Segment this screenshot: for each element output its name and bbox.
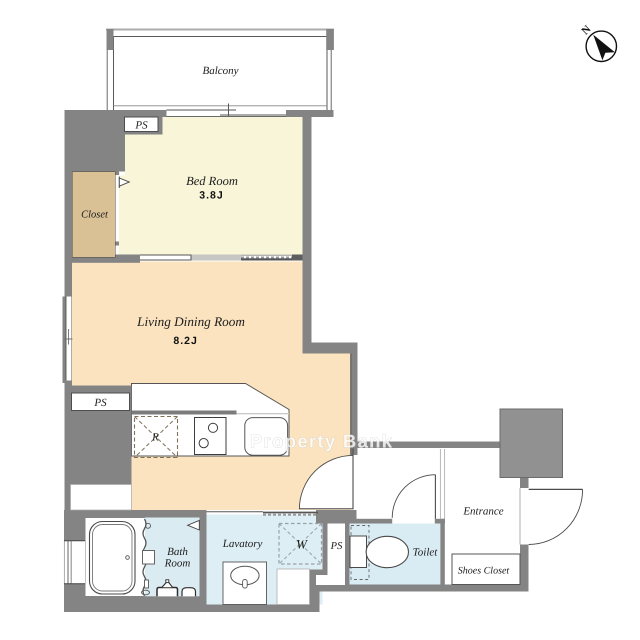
svg-text:PS: PS (134, 120, 148, 132)
svg-text:R: R (151, 432, 159, 444)
svg-text:Room: Room (164, 558, 191, 570)
svg-text:Toilet: Toilet (413, 547, 439, 559)
svg-text:Bed Room: Bed Room (186, 174, 238, 188)
svg-text:Living Dining Room: Living Dining Room (136, 314, 245, 329)
svg-text:W: W (296, 537, 308, 552)
svg-text:PS: PS (330, 541, 343, 552)
svg-text:Bath: Bath (167, 546, 188, 558)
svg-text:Lavatory: Lavatory (222, 538, 263, 550)
svg-text:Property Bank: Property Bank (250, 431, 393, 452)
svg-text:Closet: Closet (81, 209, 109, 220)
svg-text:Balcony: Balcony (202, 65, 238, 77)
svg-text:3.8J: 3.8J (199, 189, 223, 201)
svg-text:8.2J: 8.2J (173, 335, 197, 347)
svg-text:Entrance: Entrance (462, 505, 503, 517)
svg-text:Shoes Closet: Shoes Closet (458, 565, 510, 576)
svg-text:PS: PS (93, 397, 107, 409)
